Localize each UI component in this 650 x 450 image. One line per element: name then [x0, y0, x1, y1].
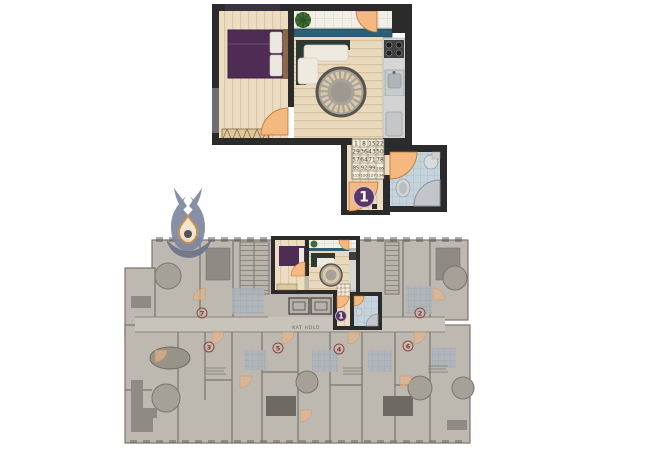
scale-grid: 1 8 15 22 29 36 43 50 57 64 71 78 85 92 …	[352, 139, 384, 179]
grid-cell: 78	[376, 157, 384, 163]
grid-cell: 134	[376, 173, 384, 178]
bathroom	[390, 152, 440, 206]
grid-cell: 85	[353, 165, 360, 171]
kitchen	[383, 38, 405, 138]
grid-cell: 113	[352, 173, 360, 178]
unit-badge: 5	[273, 343, 283, 353]
badge-number: 7	[200, 309, 205, 317]
unit-badge: 6	[403, 341, 413, 351]
badge-number: 5	[276, 344, 281, 352]
grid-cell: 106	[376, 165, 384, 170]
stairwell-left	[240, 242, 269, 294]
badge-number: 4	[337, 345, 342, 353]
tulip-drop-logo	[166, 188, 212, 258]
mini-unit-number: 1	[338, 312, 343, 321]
corridor-label: KAT HOLÜ	[292, 324, 320, 331]
bedroom-top-window	[225, 4, 280, 11]
grid-cell: 43	[368, 149, 376, 155]
detail-floor-plan: 1 8 15 22 29 36 43 50 57 64 71 78 85 92 …	[212, 4, 447, 215]
badge-number: 3	[207, 343, 212, 351]
grid-cell: 1	[354, 141, 358, 147]
pillow	[270, 55, 282, 76]
grid-cell: 99	[369, 165, 376, 171]
plans-svg: KAT HOLÜ	[0, 0, 650, 450]
fridge	[386, 112, 402, 136]
grid-cell: 57	[352, 157, 360, 163]
unit-badge: 2	[415, 308, 425, 318]
floor-plan-listing-image: KAT HOLÜ	[0, 0, 650, 450]
grid-cell: 71	[368, 157, 376, 163]
grid-cell: 15	[368, 141, 376, 147]
grid-cell: 22	[376, 141, 384, 147]
grid-cell: 29	[352, 149, 360, 155]
stairwell-right	[385, 242, 399, 294]
grid-cell: 8	[362, 141, 366, 147]
mini-unit-number-circle: 1	[336, 311, 347, 322]
full-floor-plan: KAT HOLÜ	[125, 236, 474, 443]
badge-number: 6	[406, 342, 411, 350]
grid-cell: 36	[360, 149, 368, 155]
grid-cell: 92	[361, 165, 368, 171]
entry: 1	[349, 182, 378, 211]
badge-number: 2	[418, 309, 423, 317]
unit-badge: 4	[334, 344, 344, 354]
bathroom-gray	[232, 288, 264, 314]
unit-badge: 3	[204, 342, 214, 352]
grid-cell: 120	[360, 173, 368, 178]
pillow	[270, 32, 282, 53]
corridor: KAT HOLÜ	[135, 317, 445, 332]
grid-cell: 50	[376, 149, 384, 155]
unit-number: 1	[359, 190, 369, 206]
bedroom-window	[212, 88, 219, 133]
grid-cell: 64	[360, 157, 368, 163]
grid-cell: 127	[368, 173, 376, 178]
unit-badge: 7	[197, 308, 207, 318]
mini-plant-icon	[311, 241, 318, 248]
